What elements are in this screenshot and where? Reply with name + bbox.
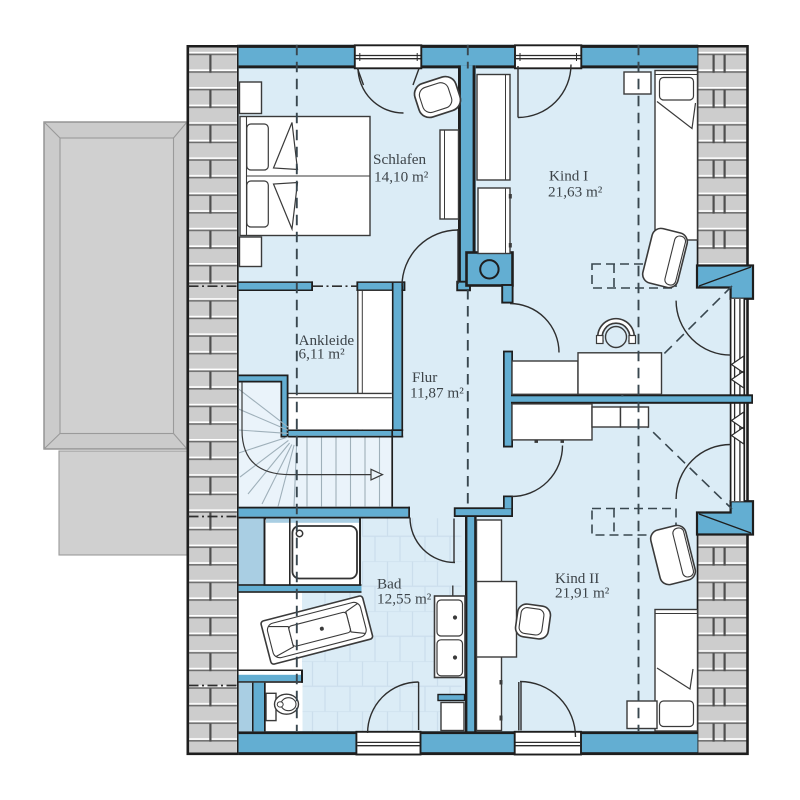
svg-text:21,91 m²: 21,91 m² xyxy=(555,585,610,602)
svg-text:12,55 m²: 12,55 m² xyxy=(377,591,432,608)
svg-text:21,63 m²: 21,63 m² xyxy=(548,184,603,201)
svg-text:14,10 m²: 14,10 m² xyxy=(374,169,429,186)
svg-text:Flur: Flur xyxy=(412,369,437,386)
svg-text:Kind I: Kind I xyxy=(549,168,588,185)
svg-text:Schlafen: Schlafen xyxy=(373,151,427,168)
svg-text:11,87 m²: 11,87 m² xyxy=(410,385,464,402)
svg-text:6,11 m²: 6,11 m² xyxy=(299,346,346,363)
